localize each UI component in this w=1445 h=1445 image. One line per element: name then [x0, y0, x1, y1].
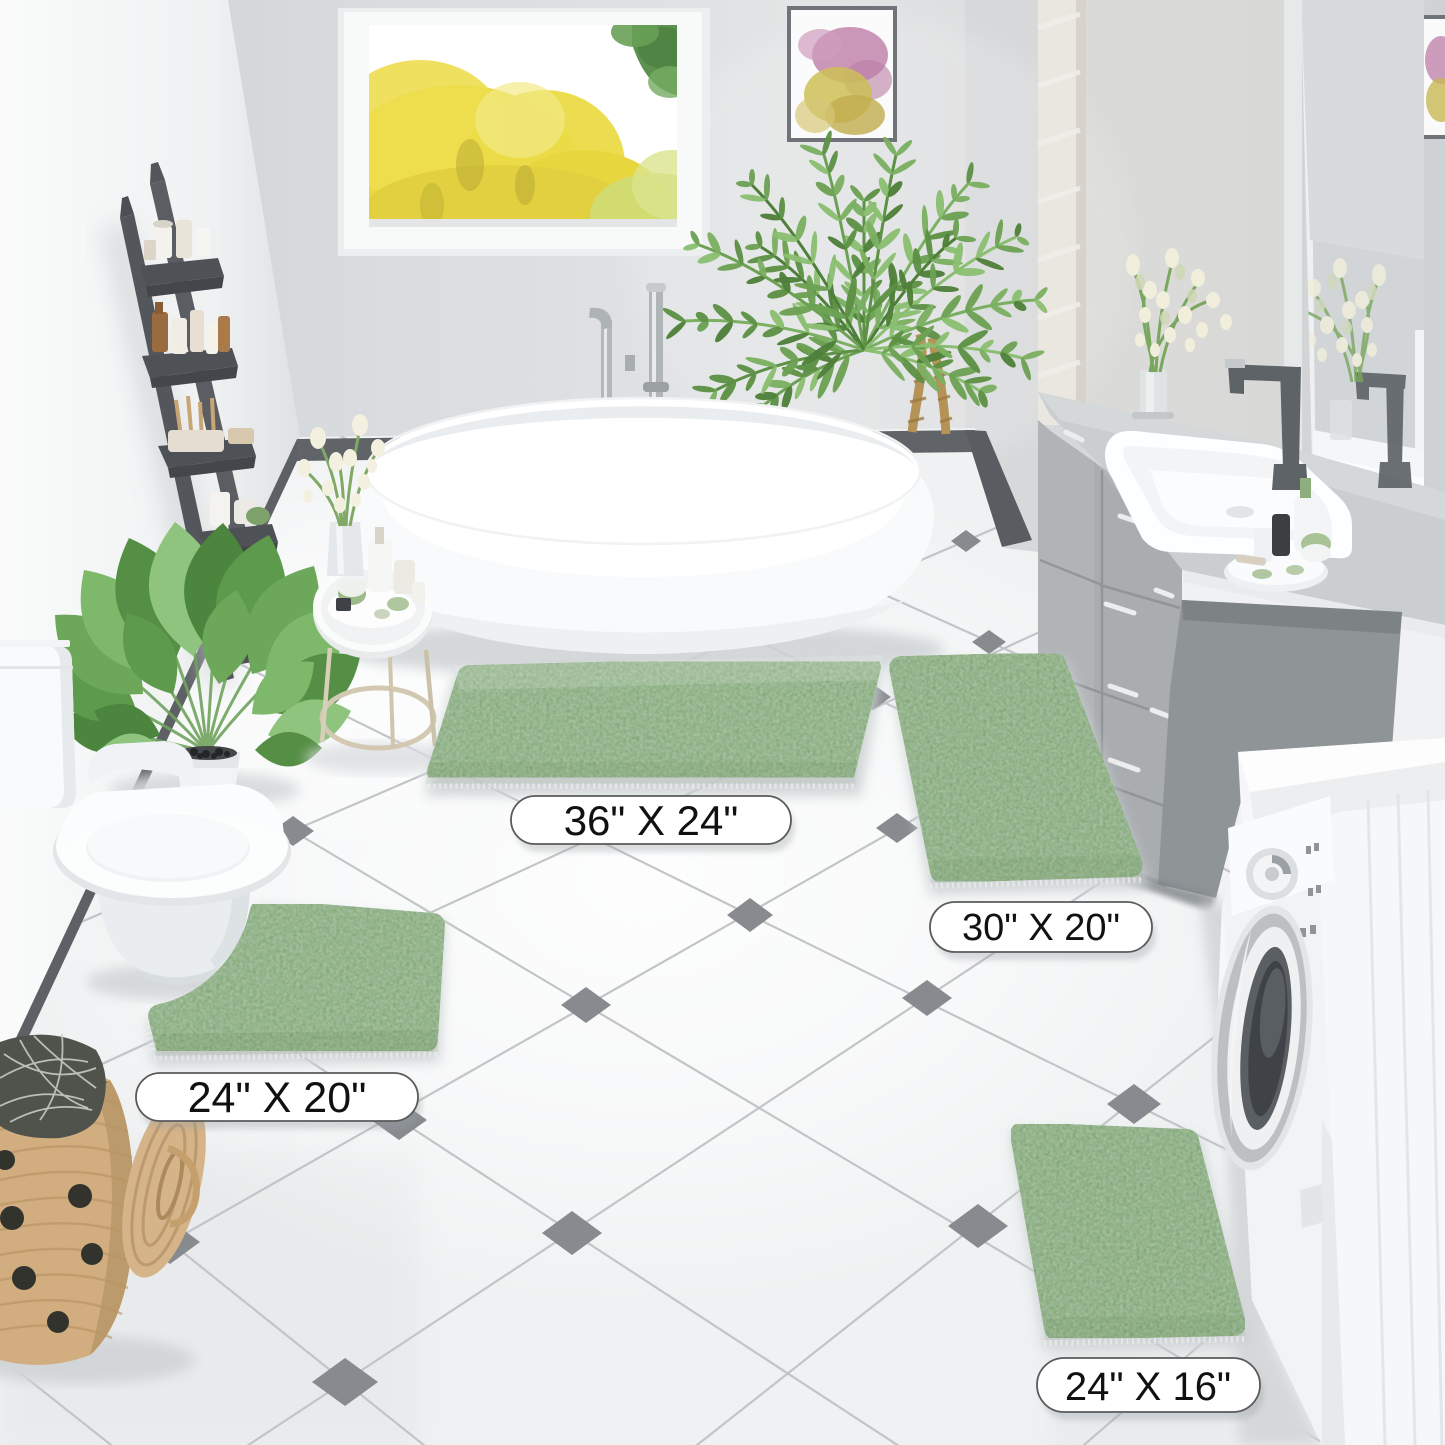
svg-text:30" X 20": 30" X 20" [962, 907, 1120, 949]
svg-text:24" X 16": 24" X 16" [1065, 1365, 1231, 1409]
svg-text:24" X 20": 24" X 20" [188, 1074, 367, 1122]
svg-text:36" X 24": 36" X 24" [564, 797, 739, 844]
